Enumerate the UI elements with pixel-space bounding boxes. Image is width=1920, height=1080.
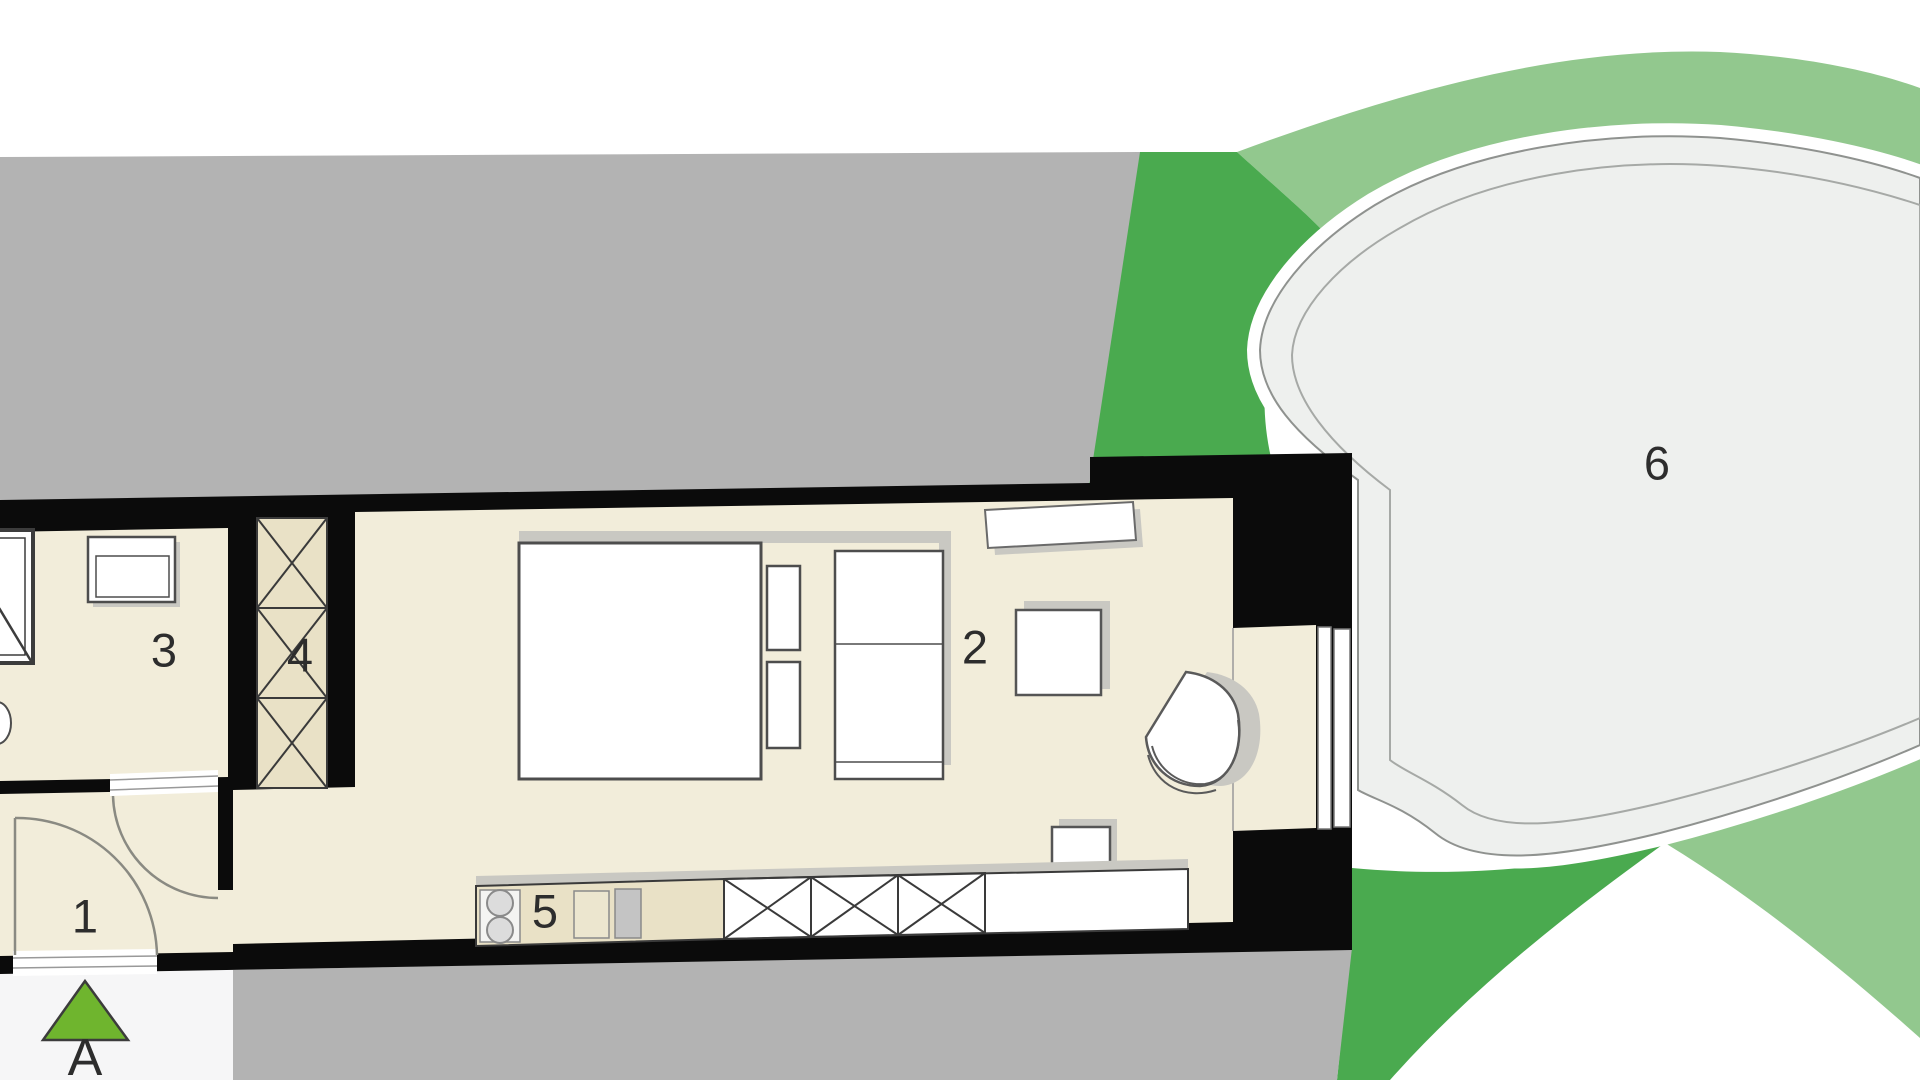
label-area-6-garden: 6 [1644,440,1670,487]
label-room-2-main: 2 [962,624,988,671]
bed-mattress [519,543,761,779]
bed-pillow [767,566,800,650]
side-table [1016,601,1110,695]
kitchen-counter-right [724,869,1188,939]
bed-pillow [767,662,800,748]
label-section-marker-a: A [68,1032,103,1080]
washbasin [88,537,180,607]
garden-ellipse [1260,136,1920,855]
label-room-5-kitchen: 5 [532,888,558,935]
stove [480,890,520,943]
wall-shelf [985,502,1143,555]
label-room-4-wardrobe: 4 [287,632,313,679]
bed-duvet [835,551,943,779]
shower [0,530,33,663]
floor-plan-drawing [0,0,1920,1080]
neighbor-strip-bottom [233,948,1352,1080]
label-room-3-bathroom: 3 [151,627,177,674]
sink-unit [574,891,609,938]
bed [519,531,951,779]
terrace-window-door [1318,627,1350,829]
label-room-1-entrance: 1 [72,893,98,940]
lawn-dark-green-wedge-bottom [1337,843,1665,1080]
appliance-unit [615,889,641,938]
neighbor-building-top [0,152,1140,502]
floor-plan-canvas: 1 2 3 4 5 6 A [0,0,1920,1080]
